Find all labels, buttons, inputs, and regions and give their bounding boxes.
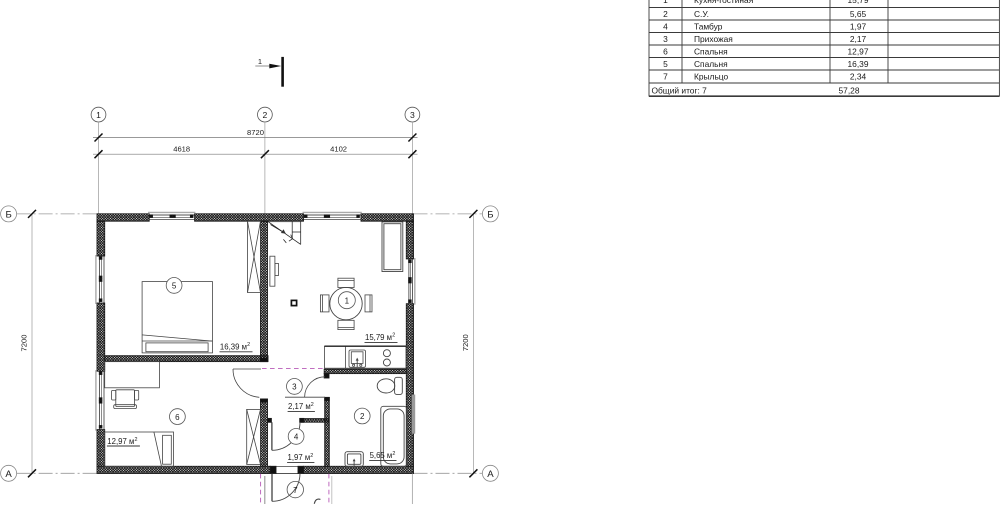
svg-text:5,65: 5,65 xyxy=(850,9,867,19)
svg-text:15,79 м: 15,79 м xyxy=(365,333,392,342)
svg-text:4102: 4102 xyxy=(330,145,347,154)
svg-text:2: 2 xyxy=(135,437,138,443)
svg-text:5: 5 xyxy=(663,59,668,69)
svg-text:2,17: 2,17 xyxy=(850,34,867,44)
svg-text:Спальня: Спальня xyxy=(694,46,728,56)
svg-text:2: 2 xyxy=(247,342,250,348)
svg-text:Б: Б xyxy=(487,209,493,220)
svg-text:7200: 7200 xyxy=(20,335,29,352)
svg-text:15,79: 15,79 xyxy=(848,0,869,5)
svg-text:2: 2 xyxy=(360,412,365,421)
svg-text:7: 7 xyxy=(293,486,298,495)
svg-text:5,65 м: 5,65 м xyxy=(370,451,393,460)
svg-text:2: 2 xyxy=(263,110,268,120)
svg-text:12,97 м: 12,97 м xyxy=(107,437,134,446)
svg-text:2: 2 xyxy=(311,402,314,408)
svg-text:1: 1 xyxy=(258,57,262,66)
svg-text:3: 3 xyxy=(410,110,415,120)
svg-text:А: А xyxy=(487,469,494,480)
svg-text:16,39: 16,39 xyxy=(848,59,869,69)
svg-text:Прихожая: Прихожая xyxy=(694,34,733,44)
svg-text:Общий итог: 7: Общий итог: 7 xyxy=(652,85,708,95)
svg-text:Б: Б xyxy=(5,209,11,220)
svg-text:Кухня-гостиная: Кухня-гостиная xyxy=(694,0,753,5)
svg-text:2: 2 xyxy=(663,9,668,19)
svg-text:3: 3 xyxy=(292,383,297,392)
svg-text:5: 5 xyxy=(172,282,177,291)
svg-text:Тамбур: Тамбур xyxy=(694,21,723,31)
svg-text:7: 7 xyxy=(663,72,668,82)
svg-text:1: 1 xyxy=(345,296,350,305)
svg-text:4: 4 xyxy=(663,21,668,31)
svg-text:4618: 4618 xyxy=(173,145,190,154)
svg-text:8720: 8720 xyxy=(247,128,264,137)
svg-text:16,39 м: 16,39 м xyxy=(220,343,247,352)
svg-text:1,97: 1,97 xyxy=(850,21,867,31)
svg-text:С.У.: С.У. xyxy=(694,9,709,19)
svg-text:7200: 7200 xyxy=(461,334,470,351)
svg-text:12,97: 12,97 xyxy=(848,46,869,56)
svg-text:3: 3 xyxy=(663,34,668,44)
svg-text:2,34: 2,34 xyxy=(850,72,867,82)
svg-text:4: 4 xyxy=(294,433,299,442)
svg-text:6: 6 xyxy=(175,413,180,422)
svg-text:Спальня: Спальня xyxy=(694,59,728,69)
svg-text:1: 1 xyxy=(96,110,101,120)
svg-text:57,28: 57,28 xyxy=(839,85,860,95)
svg-text:2: 2 xyxy=(392,332,395,338)
svg-text:2,17 м: 2,17 м xyxy=(288,402,311,411)
svg-text:2: 2 xyxy=(310,453,313,459)
svg-text:1,97 м: 1,97 м xyxy=(288,453,311,462)
svg-text:2: 2 xyxy=(392,451,395,457)
svg-text:1: 1 xyxy=(663,0,668,5)
svg-text:Крыльцо: Крыльцо xyxy=(694,72,729,82)
svg-text:6: 6 xyxy=(663,46,668,56)
svg-text:А: А xyxy=(5,469,12,480)
